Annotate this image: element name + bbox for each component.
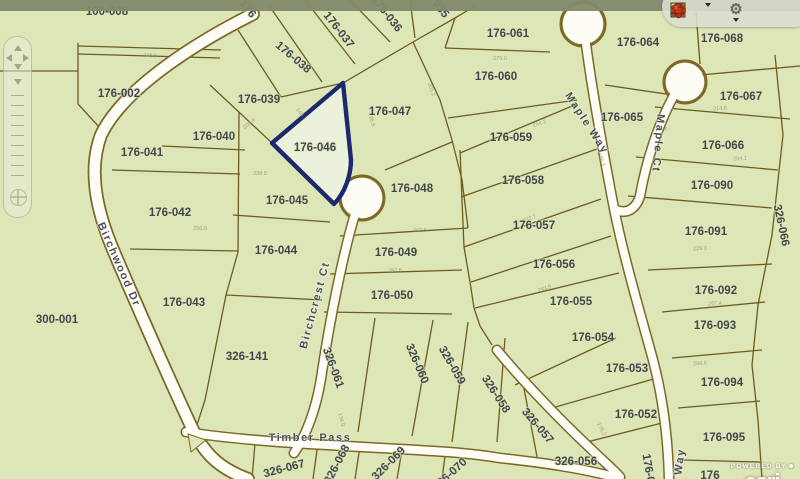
parcel-label[interactable]: 176-092: [695, 285, 737, 297]
parcel-label[interactable]: 326-056: [555, 456, 597, 468]
parcel-label-highlighted[interactable]: 176-046: [294, 142, 336, 154]
parcel-label[interactable]: 176-039: [238, 94, 280, 106]
dimension-label: 238.5: [253, 171, 267, 177]
parcel-label[interactable]: 176-047: [369, 106, 411, 118]
parcel-label[interactable]: 176-050: [371, 290, 413, 302]
parcel-label[interactable]: 176-059: [490, 132, 532, 144]
roads: [95, 2, 706, 479]
parcel-label[interactable]: 326-067: [262, 458, 306, 479]
parcel-label[interactable]: 176-055: [550, 296, 593, 308]
parcel-label-partial[interactable]: 326-070: [430, 456, 469, 479]
pan-south-arrow[interactable]: [14, 64, 22, 70]
street-label-timber-pass: Timber Pass: [269, 432, 352, 444]
parcel-label[interactable]: 176-058: [502, 175, 545, 187]
parcel-label[interactable]: 176-049: [375, 247, 417, 259]
dimension-label: 302.5: [413, 228, 427, 234]
dimension-label: 248.6: [143, 53, 157, 59]
globe-button[interactable]: [754, 2, 774, 26]
parcel-label[interactable]: 176-040: [193, 131, 235, 143]
dimension-label: 288.6: [693, 361, 707, 368]
parcel-label[interactable]: 176-091: [685, 226, 728, 238]
parcel-label[interactable]: 326-058: [479, 373, 512, 415]
zoom-tick[interactable]: [11, 155, 24, 156]
zoom-tick[interactable]: [11, 115, 24, 116]
zoom-tick[interactable]: [11, 165, 24, 166]
parcel-label-partial[interactable]: 176-0: [639, 453, 656, 479]
parcel-label[interactable]: 176-052: [615, 409, 657, 421]
parcel-label[interactable]: 176-002: [98, 88, 140, 100]
tools-button[interactable]: ⚙: [726, 2, 746, 26]
dimension-label: 208.4: [242, 118, 256, 131]
gear-icon: ⚙: [729, 2, 742, 17]
parcel-label[interactable]: 176-038: [273, 40, 314, 77]
parcel-label[interactable]: 176-064: [617, 37, 660, 49]
dimension-label: 176.2: [595, 422, 607, 437]
dimension-label: 297.6: [388, 268, 402, 274]
dimension-label: 254.1: [733, 156, 747, 163]
esri-logo-text: esri: [727, 473, 797, 479]
parcel-label[interactable]: 176-065: [601, 112, 644, 124]
parcel-label[interactable]: 176-057: [513, 220, 555, 232]
parcel-label[interactable]: 176-090: [691, 180, 733, 192]
parcel-label[interactable]: 176-041: [121, 147, 164, 159]
chevron-down-icon[interactable]: [705, 3, 711, 7]
parcel-label[interactable]: 176-048: [391, 183, 434, 195]
parcel-label[interactable]: 326-066: [771, 203, 792, 247]
dimension-label: 301.2: [426, 82, 436, 97]
zoom-tick[interactable]: [11, 145, 24, 146]
esri-dot-icon: [789, 464, 793, 468]
street-label-way: Way: [672, 447, 687, 475]
parcel-label[interactable]: 176-054: [572, 332, 615, 344]
dimension-label: 229.3: [693, 246, 707, 253]
parcel-label[interactable]: 176-067: [720, 91, 762, 103]
parcel-map-canvas[interactable]: 248.6 208.4 249.1 195.5 301.2 275.0 244.…: [0, 0, 800, 479]
zoom-slider-thumb[interactable]: [14, 79, 22, 85]
dimension-label: 243.8: [537, 284, 552, 294]
zoom-tick[interactable]: [11, 135, 24, 136]
dimension-label: 244.2: [532, 119, 547, 129]
parcel-label[interactable]: 326-060: [403, 342, 431, 386]
dimension-label: 214.8: [713, 106, 727, 113]
parcel-label[interactable]: 176-093: [694, 320, 736, 332]
pan-east-arrow[interactable]: [23, 54, 29, 62]
parcel-label[interactable]: 300-001: [36, 314, 79, 326]
pan-north-arrow[interactable]: [14, 45, 22, 51]
street-label-birchwood-dr: Birchwood Dr: [95, 221, 143, 309]
world-view-icon[interactable]: [10, 189, 27, 206]
pan-west-arrow[interactable]: [6, 54, 12, 62]
parcel-label[interactable]: 176-066: [702, 140, 744, 152]
zoom-tick[interactable]: [11, 175, 24, 176]
dimension-label: 267.4: [708, 301, 722, 308]
toolbar-icons: ⚙: [670, 2, 774, 26]
parcel-label[interactable]: 176-045: [266, 195, 309, 207]
street-label-maple-ct: Maple Ct: [649, 114, 666, 173]
find-button[interactable]: [698, 2, 718, 26]
parcel-label[interactable]: 176-068: [701, 33, 744, 45]
parcel-label[interactable]: 176-053: [606, 363, 648, 375]
parcel-label[interactable]: 176-056: [533, 259, 575, 271]
parcel-label[interactable]: 176-061: [487, 28, 530, 40]
zoom-tick[interactable]: [11, 105, 24, 106]
chevron-down-icon[interactable]: [733, 18, 739, 22]
dimension-label: 134.0: [336, 412, 345, 427]
parcel-label-partial[interactable]: 176: [700, 470, 719, 479]
parcel-label[interactable]: 176-042: [149, 207, 191, 219]
dimension-label: 275.0: [493, 56, 507, 62]
zoom-tick[interactable]: [11, 95, 24, 96]
map-navigation-widget[interactable]: [3, 36, 32, 218]
parcel-label[interactable]: 326-141: [226, 351, 269, 363]
parcel-label[interactable]: 176-044: [255, 245, 298, 257]
globe-red-icon: [670, 2, 687, 19]
parcel-label[interactable]: 176-094: [701, 377, 744, 389]
zoom-tick[interactable]: [11, 125, 24, 126]
map-viewport[interactable]: 248.6 208.4 249.1 195.5 301.2 275.0 244.…: [0, 0, 800, 479]
parcel-label[interactable]: 176-043: [163, 297, 205, 309]
parcel-label[interactable]: 176-037: [321, 10, 356, 51]
esri-watermark: POWERED BY esri: [727, 455, 797, 479]
parcel-label[interactable]: 176-060: [475, 71, 517, 83]
dimension-label: 256.8: [193, 226, 207, 232]
parcel-label[interactable]: 176-095: [703, 432, 746, 444]
